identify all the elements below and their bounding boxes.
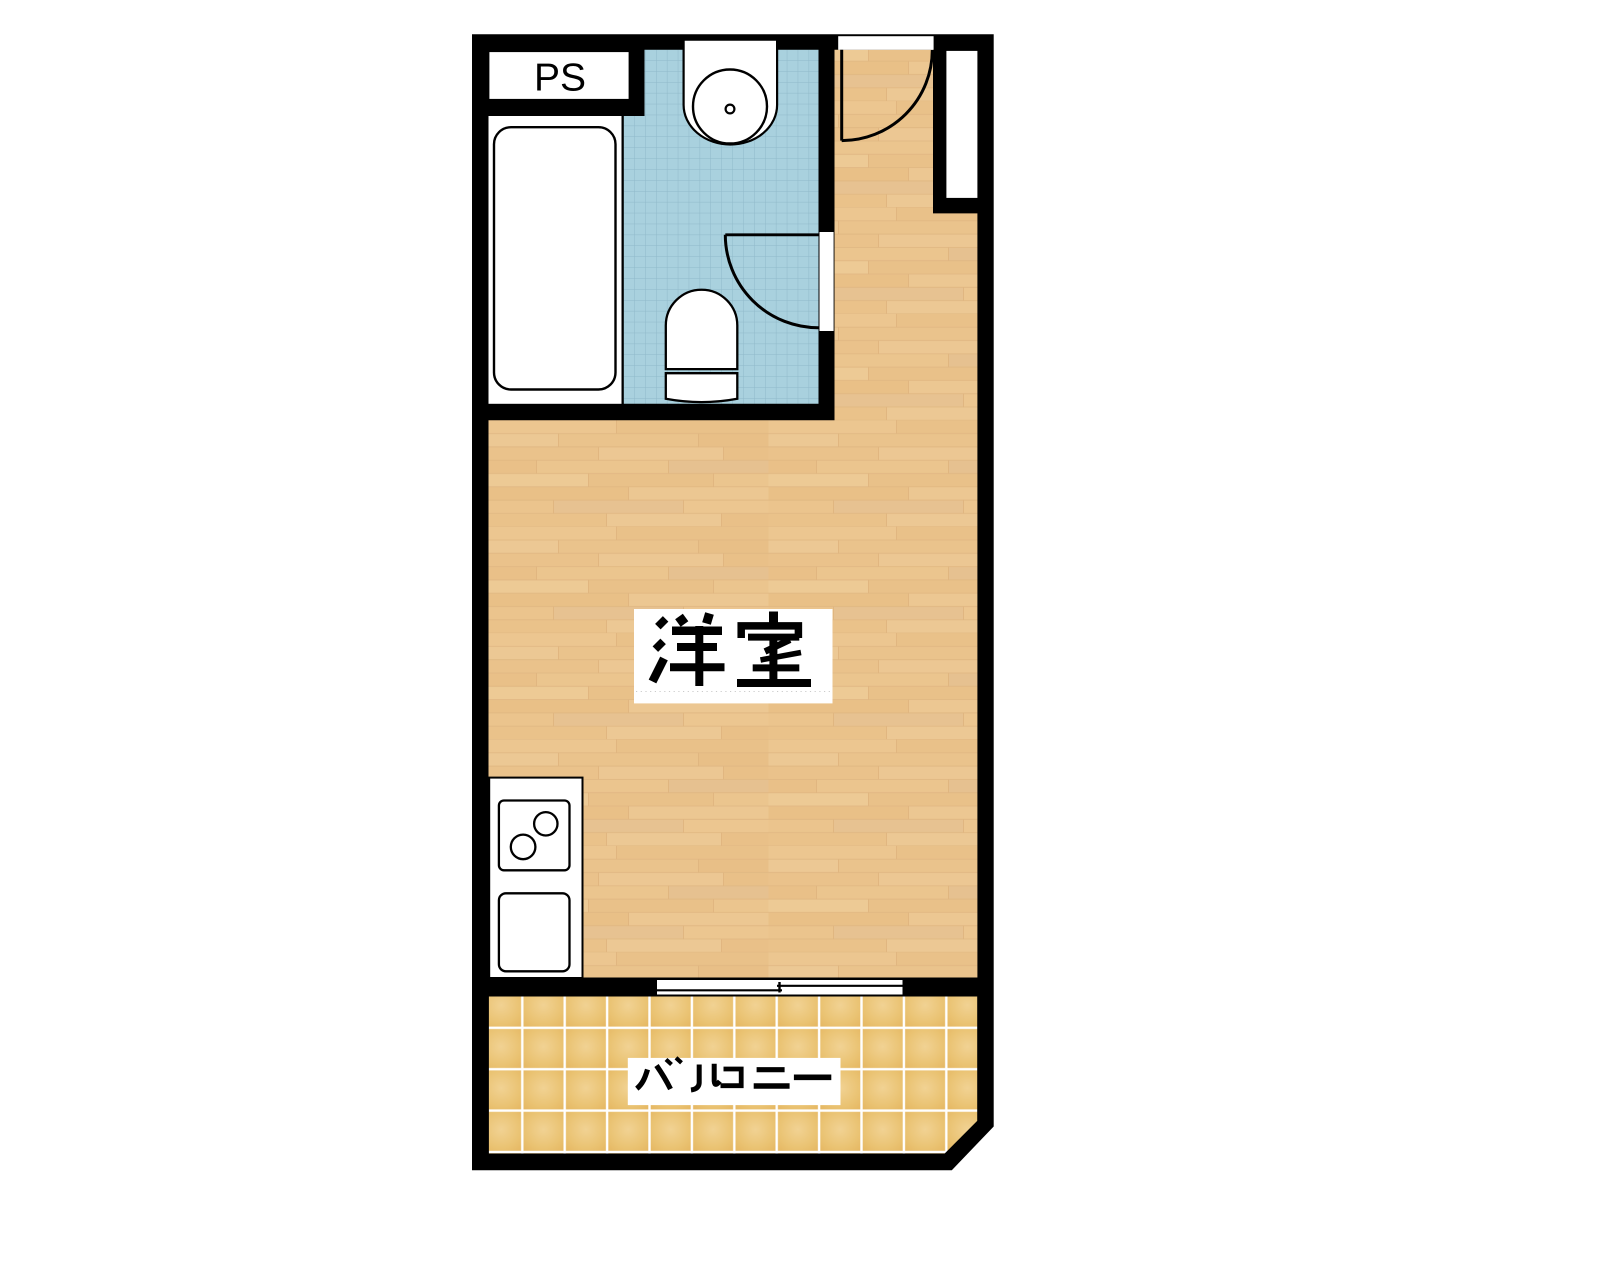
svg-text:PS: PS	[534, 57, 586, 100]
